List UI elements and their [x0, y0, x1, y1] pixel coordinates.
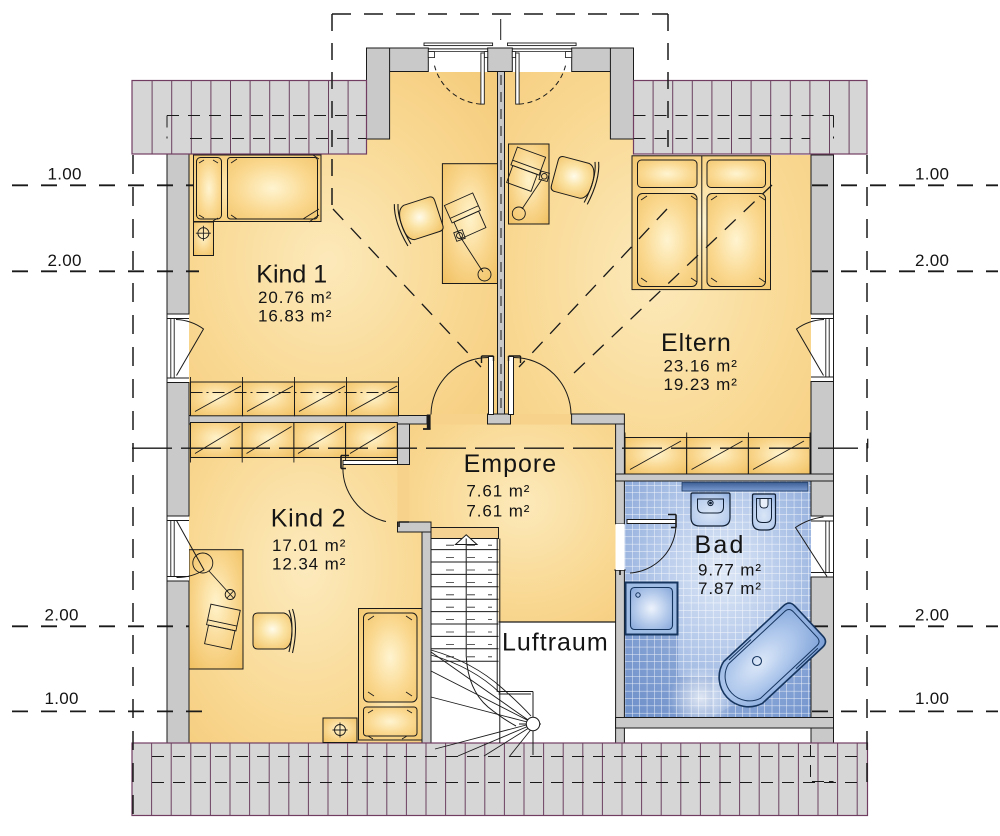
svg-text:1.00: 1.00 — [45, 689, 79, 708]
svg-text:Bad: Bad — [695, 531, 746, 559]
svg-text:1.00: 1.00 — [915, 689, 949, 708]
svg-text:Kind 2: Kind 2 — [271, 505, 347, 533]
svg-text:7.61 m²: 7.61 m² — [466, 482, 530, 501]
svg-text:2.00: 2.00 — [45, 606, 79, 625]
svg-text:7.61 m²: 7.61 m² — [466, 501, 530, 520]
svg-text:12.34 m²: 12.34 m² — [272, 555, 346, 574]
svg-text:9.77 m²: 9.77 m² — [698, 561, 762, 580]
svg-text:2.00: 2.00 — [915, 606, 949, 625]
svg-text:23.16 m²: 23.16 m² — [664, 357, 738, 376]
svg-text:Luftraum: Luftraum — [502, 629, 609, 657]
svg-text:1.00: 1.00 — [48, 165, 82, 184]
svg-text:20.76 m²: 20.76 m² — [258, 288, 332, 307]
svg-text:Kind 1: Kind 1 — [256, 261, 327, 289]
svg-text:2.00: 2.00 — [915, 251, 949, 270]
svg-text:Eltern: Eltern — [661, 329, 732, 357]
svg-text:1.00: 1.00 — [915, 165, 949, 184]
svg-text:Empore: Empore — [464, 450, 558, 478]
svg-text:2.00: 2.00 — [48, 251, 82, 270]
svg-text:17.01 m²: 17.01 m² — [272, 536, 346, 555]
svg-text:16.83 m²: 16.83 m² — [258, 307, 332, 326]
svg-text:7.87 m²: 7.87 m² — [698, 579, 762, 598]
svg-text:19.23 m²: 19.23 m² — [664, 375, 738, 394]
